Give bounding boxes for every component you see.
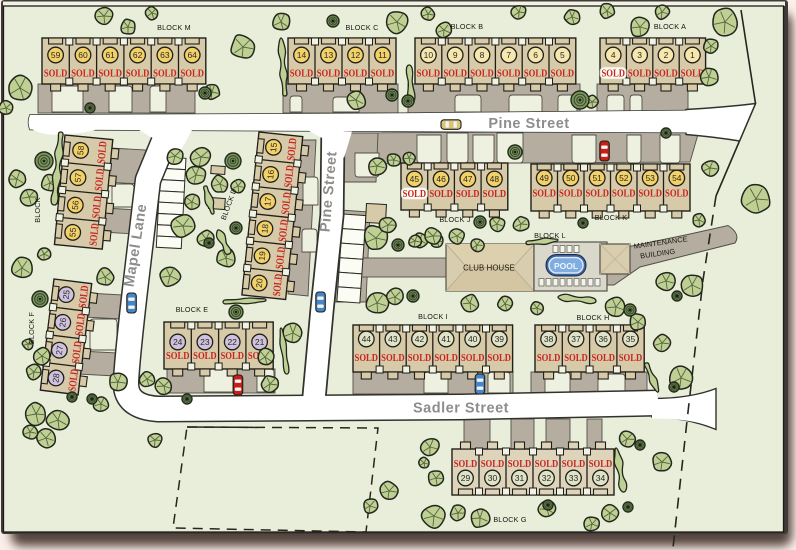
svg-text:64: 64 [187,50,197,60]
svg-text:SOLD: SOLD [126,68,150,80]
svg-text:SOLD: SOLD [443,68,467,80]
svg-text:44: 44 [362,334,372,344]
svg-text:SOLD: SOLD [417,68,441,80]
svg-text:SOLD: SOLD [461,352,485,364]
svg-text:21: 21 [255,337,265,347]
svg-text:39: 39 [495,334,505,344]
svg-text:SOLD: SOLD [220,350,244,362]
svg-text:BLOCK M: BLOCK M [157,23,191,32]
svg-text:4: 4 [611,50,616,60]
svg-text:8: 8 [480,50,485,60]
svg-text:7: 7 [506,50,511,60]
svg-text:SOLD: SOLD [434,352,458,364]
svg-text:40: 40 [468,334,478,344]
svg-text:SOLD: SOLD [638,188,662,200]
svg-text:37: 37 [571,334,581,344]
svg-text:SOLD: SOLD [98,68,122,80]
svg-text:33: 33 [569,473,579,483]
svg-text:SOLD: SOLD [564,352,588,364]
svg-text:18: 18 [259,223,270,234]
svg-text:BLOCK B: BLOCK B [451,22,484,31]
svg-text:SOLD: SOLD [589,458,613,470]
svg-text:SOLD: SOLD [612,188,636,200]
svg-text:SOLD: SOLD [619,352,643,364]
svg-text:Sadler Street: Sadler Street [413,401,509,417]
svg-text:1: 1 [690,50,695,60]
svg-text:50: 50 [566,173,576,183]
svg-text:POOL: POOL [554,261,578,271]
svg-text:BLOCK G: BLOCK G [493,515,527,524]
svg-text:42: 42 [415,334,425,344]
svg-text:SOLD: SOLD [497,68,521,80]
svg-text:63: 63 [160,50,170,60]
svg-text:SOLD: SOLD [429,188,453,200]
svg-text:49: 49 [539,173,549,183]
svg-text:SOLD: SOLD [71,68,95,80]
svg-text:SOLD: SOLD [282,165,296,189]
svg-text:29: 29 [461,473,471,483]
svg-text:11: 11 [378,50,387,60]
svg-text:SOLD: SOLD [153,68,177,80]
svg-text:62: 62 [133,50,143,60]
svg-text:SOLD: SOLD [403,188,427,200]
svg-text:36: 36 [598,334,608,344]
svg-text:3: 3 [637,50,642,60]
svg-text:9: 9 [453,50,458,60]
svg-text:BLOCK L: BLOCK L [534,231,566,240]
svg-text:58: 58 [75,145,86,156]
svg-text:56: 56 [70,200,81,211]
svg-text:SOLD: SOLD [470,68,494,80]
svg-text:25: 25 [61,289,72,300]
svg-text:SOLD: SOLD [665,188,689,200]
svg-text:SOLD: SOLD [277,219,291,243]
svg-text:SOLD: SOLD [524,68,548,80]
svg-text:SOLD: SOLD [317,68,341,80]
svg-text:2: 2 [664,50,669,60]
svg-text:SOLD: SOLD [591,352,615,364]
svg-text:SOLD: SOLD [180,68,204,80]
svg-text:SOLD: SOLD [88,223,102,247]
svg-text:15: 15 [268,142,279,153]
svg-text:SOLD: SOLD [193,350,217,362]
svg-text:55: 55 [67,227,78,238]
svg-text:SOLD: SOLD [274,246,288,270]
svg-text:SOLD: SOLD [585,188,609,200]
svg-text:59: 59 [51,50,61,60]
svg-text:SOLD: SOLD [355,352,379,364]
svg-text:12: 12 [351,50,361,60]
svg-text:SOLD: SOLD [166,350,190,362]
svg-text:51: 51 [592,173,602,183]
svg-text:BLOCK A: BLOCK A [654,22,686,31]
svg-text:38: 38 [544,334,554,344]
svg-text:22: 22 [227,337,237,347]
svg-text:SOLD: SOLD [483,188,507,200]
svg-text:32: 32 [542,473,552,483]
svg-text:17: 17 [262,196,273,207]
svg-text:14: 14 [297,50,307,60]
svg-text:SOLD: SOLD [551,68,575,80]
svg-text:SOLD: SOLD [508,458,532,470]
svg-text:SOLD: SOLD [654,68,678,80]
svg-text:BLOCK J: BLOCK J [439,215,471,224]
svg-text:19: 19 [257,250,268,261]
svg-text:5: 5 [560,50,565,60]
svg-text:61: 61 [105,50,115,60]
svg-text:13: 13 [324,50,334,60]
svg-text:SOLD: SOLD [532,188,556,200]
svg-text:SOLD: SOLD [290,68,314,80]
svg-text:10: 10 [424,50,434,60]
svg-text:53: 53 [645,173,655,183]
svg-text:16: 16 [265,169,276,180]
svg-text:31: 31 [515,473,525,483]
svg-text:SOLD: SOLD [481,458,505,470]
svg-text:20: 20 [254,278,265,289]
svg-text:54: 54 [672,173,682,183]
svg-text:43: 43 [388,334,398,344]
svg-text:SOLD: SOLD [285,137,299,161]
svg-text:47: 47 [463,174,473,184]
svg-text:46: 46 [436,174,446,184]
svg-text:SOLD: SOLD [271,273,285,297]
svg-text:SOLD: SOLD [344,68,368,80]
svg-text:41: 41 [441,334,451,344]
svg-text:BLOCK H: BLOCK H [577,313,610,322]
svg-text:SOLD: SOLD [454,458,478,470]
svg-text:45: 45 [410,174,420,184]
svg-text:SOLD: SOLD [408,352,432,364]
svg-text:27: 27 [54,345,65,356]
svg-text:SOLD: SOLD [90,195,104,219]
svg-text:Pine Street: Pine Street [488,116,569,132]
svg-text:BLOCK: BLOCK [33,197,42,222]
svg-text:BLOCK E: BLOCK E [176,305,209,314]
svg-text:60: 60 [78,50,88,60]
svg-text:26: 26 [57,317,68,328]
svg-text:SOLD: SOLD [628,68,652,80]
svg-text:BLOCK I: BLOCK I [418,312,448,321]
svg-text:23: 23 [200,337,210,347]
svg-text:BLOCK C: BLOCK C [346,23,379,32]
svg-text:24: 24 [173,337,183,347]
svg-text:SOLD: SOLD [601,68,625,80]
svg-text:SOLD: SOLD [280,192,294,216]
svg-text:SOLD: SOLD [559,188,583,200]
svg-text:SOLD: SOLD [537,352,561,364]
svg-text:CLUB HOUSE: CLUB HOUSE [463,264,515,273]
svg-text:57: 57 [73,172,84,183]
svg-text:52: 52 [619,173,629,183]
svg-text:SOLD: SOLD [371,68,395,80]
svg-text:35: 35 [626,334,636,344]
svg-text:30: 30 [488,473,498,483]
svg-text:6: 6 [533,50,538,60]
svg-text:SOLD: SOLD [535,458,559,470]
svg-text:SOLD: SOLD [44,68,68,80]
svg-text:SOLD: SOLD [488,352,512,364]
svg-text:BLOCK F: BLOCK F [27,312,36,345]
svg-text:SOLD: SOLD [381,352,405,364]
svg-text:28: 28 [50,372,61,383]
svg-text:SOLD: SOLD [95,141,109,165]
svg-text:34: 34 [596,473,606,483]
svg-text:SOLD: SOLD [456,188,480,200]
svg-text:SOLD: SOLD [93,168,107,192]
svg-text:SOLD: SOLD [562,458,586,470]
svg-text:48: 48 [490,174,500,184]
svg-text:BLOCK K: BLOCK K [595,213,628,222]
